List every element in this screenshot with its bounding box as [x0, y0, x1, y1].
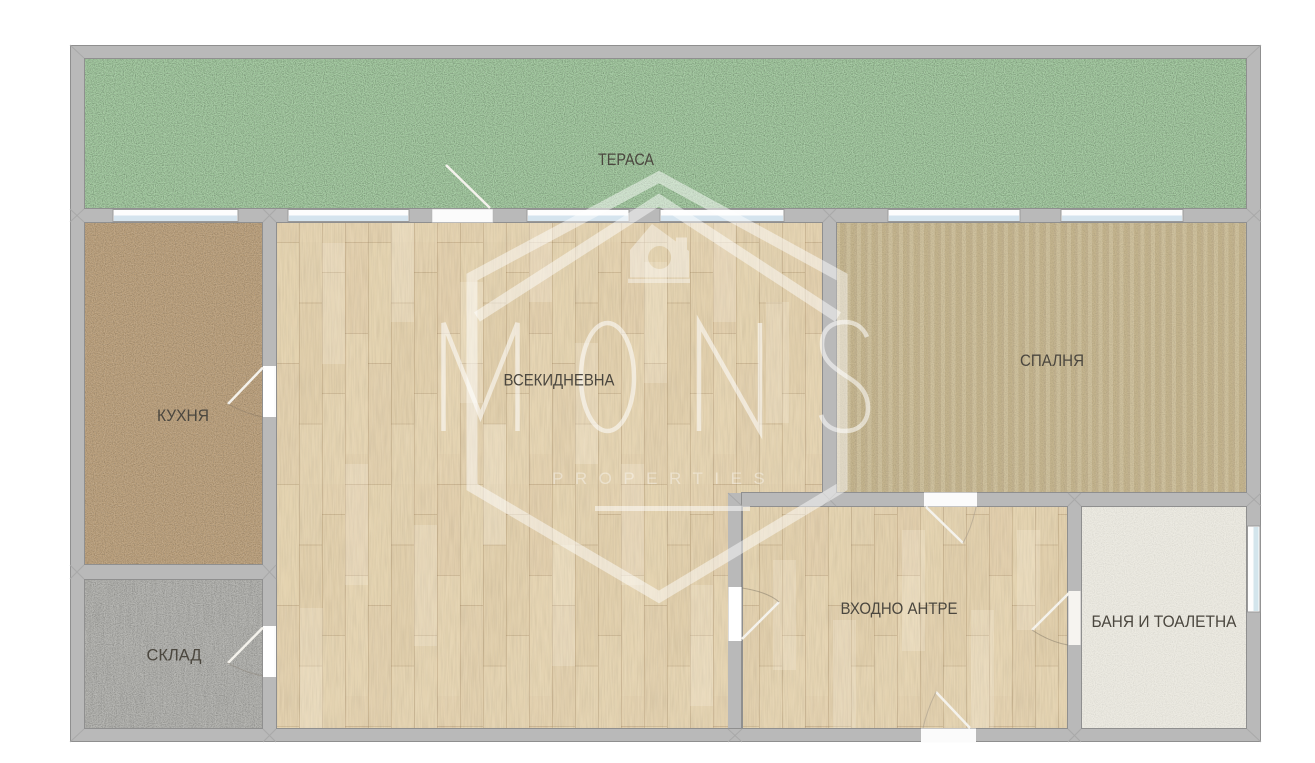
svg-text:ВСЕКИДНЕВНА: ВСЕКИДНЕВНА	[504, 371, 616, 390]
svg-text:СПАЛНЯ: СПАЛНЯ	[1020, 351, 1084, 370]
svg-text:КУХНЯ: КУХНЯ	[157, 406, 209, 425]
svg-text:PROPERTIES: PROPERTIES	[552, 469, 776, 488]
svg-text:БАНЯ И ТОАЛЕТНА: БАНЯ И ТОАЛЕТНА	[1092, 612, 1238, 631]
svg-text:СКЛАД: СКЛАД	[147, 646, 202, 665]
svg-text:ВХОДНО АНТРЕ: ВХОДНО АНТРЕ	[841, 599, 958, 618]
svg-text:ТЕРАСА: ТЕРАСА	[598, 150, 655, 169]
